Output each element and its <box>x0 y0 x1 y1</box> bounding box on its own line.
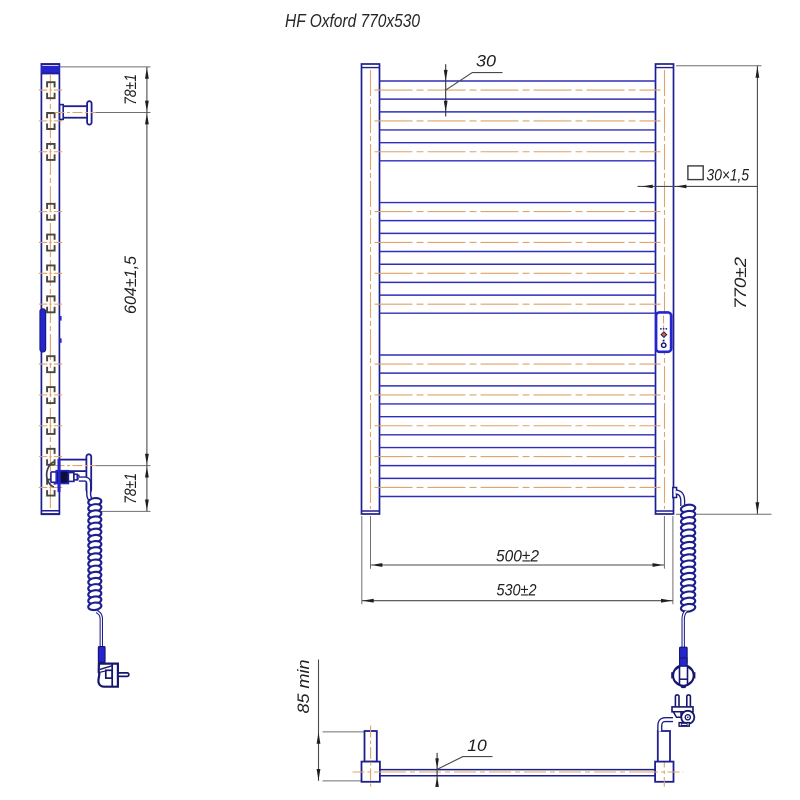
svg-text:78±1: 78±1 <box>121 473 140 504</box>
svg-text:HF Oxford 770x530: HF Oxford 770x530 <box>285 10 421 31</box>
svg-text:78±1: 78±1 <box>121 74 140 105</box>
svg-text:530±2: 530±2 <box>497 581 537 600</box>
svg-text:85 min: 85 min <box>294 660 313 714</box>
svg-text:10: 10 <box>467 736 487 755</box>
svg-text:30×1,5: 30×1,5 <box>707 166 750 185</box>
svg-text:500±2: 500±2 <box>496 546 539 565</box>
svg-text:604±1,5: 604±1,5 <box>121 255 140 314</box>
svg-text:30: 30 <box>476 51 497 70</box>
svg-text:770±2: 770±2 <box>731 256 750 309</box>
